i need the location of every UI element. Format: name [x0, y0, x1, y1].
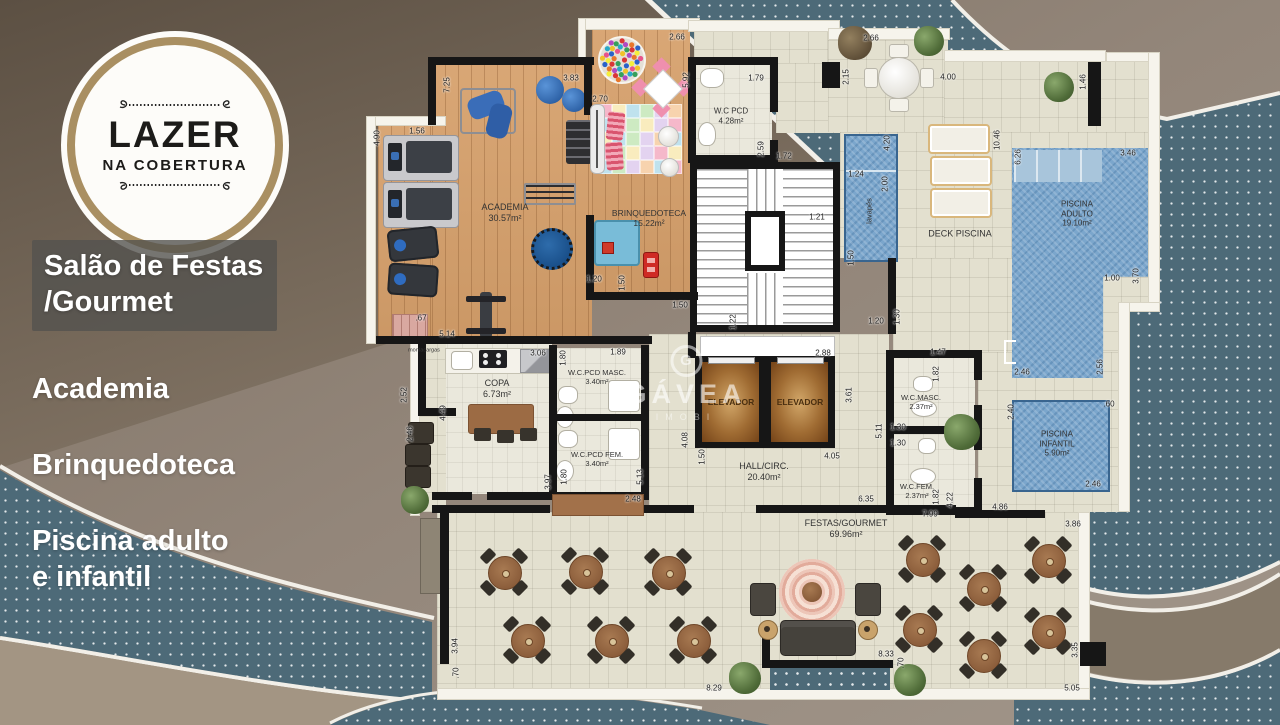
ball-pit-ball [635, 66, 640, 71]
ball-pit-ball [615, 49, 620, 54]
pool-lounger [930, 188, 992, 218]
ball-pit-ball [609, 51, 614, 56]
deck-table [878, 57, 920, 99]
lavapes [844, 134, 898, 262]
lounge-chair [408, 422, 434, 444]
stairwell [690, 162, 840, 332]
wall [974, 350, 982, 380]
wall [1088, 62, 1101, 126]
kitchen-sink [451, 351, 473, 370]
wc-sink [558, 386, 578, 404]
ball-pit-ball [630, 47, 635, 52]
grass-tuft [729, 662, 761, 694]
stair-core [745, 211, 785, 271]
copa-chair [520, 428, 537, 441]
sofa [780, 620, 856, 656]
ball-pit-ball [635, 45, 640, 50]
toy-slide [590, 104, 605, 174]
bench-press [466, 290, 506, 340]
toy-ball [660, 158, 679, 177]
play-mat-tile [626, 104, 640, 118]
ball-pit-ball [629, 42, 634, 47]
wall [586, 215, 594, 297]
parapet [1148, 52, 1160, 312]
piscina-infantil [1012, 400, 1110, 492]
ball-pit-ball [618, 44, 623, 49]
wall [888, 258, 896, 334]
stove [479, 350, 507, 368]
striped-play-mat [606, 111, 626, 141]
multi-gym-machine [456, 78, 522, 142]
copa-chair [474, 428, 491, 441]
amenities-list: Salão de Festas /GourmetAcademiaBrinqued… [32, 240, 362, 596]
wall [822, 62, 840, 88]
wall [440, 512, 449, 664]
ball-pit-ball [616, 61, 621, 66]
wall [428, 57, 594, 65]
lounge-chair [405, 444, 431, 466]
ball-pit-ball [632, 55, 637, 60]
wall [688, 155, 778, 163]
ball-pit-ball [610, 46, 615, 51]
wall [418, 340, 426, 416]
stair-treads [783, 169, 833, 325]
deck-chair [864, 68, 878, 88]
sidebar-item: Salão de Festas /Gourmet [32, 240, 277, 331]
wc-toilet [556, 460, 574, 482]
parapet [366, 116, 376, 344]
wall [770, 57, 778, 112]
play-mat-tile [640, 132, 654, 146]
play-mat-tile [626, 160, 640, 174]
wc-sink [913, 376, 933, 392]
ball-pit-ball [624, 63, 629, 68]
lavapes-divider [846, 170, 896, 172]
ball-pit-ball [612, 56, 617, 61]
ball-pit-ball [607, 71, 612, 76]
gym-mat-circle [531, 228, 573, 270]
sidebar-item: Academia [32, 371, 169, 407]
ball-pit-ball [605, 46, 610, 51]
ball-pit-ball [617, 66, 622, 71]
elevator-door [777, 357, 824, 364]
play-mat-tile [640, 104, 654, 118]
wall [432, 492, 472, 500]
pool-lounger [930, 156, 992, 186]
wall [549, 345, 557, 498]
shrub [914, 26, 944, 56]
wc-shower [608, 428, 640, 460]
pool-steps [1014, 150, 1102, 182]
wall [642, 505, 694, 513]
ball-pit-ball [620, 51, 625, 56]
exercise-bike [387, 262, 439, 297]
ball-pit-ball [627, 71, 632, 76]
elevator-door [708, 357, 755, 364]
dumbbell-rack [566, 120, 592, 164]
wc-sink [918, 438, 936, 454]
sidebar-item: Brinquedoteca [32, 447, 235, 483]
wall [762, 660, 893, 668]
play-mat-tile [668, 104, 682, 118]
ball-pit-ball [638, 56, 643, 61]
exercise-ball [562, 88, 586, 112]
ball-pit-ball [632, 72, 637, 77]
ball-pit-ball [602, 62, 607, 67]
flourish-icon [115, 178, 235, 192]
badge-title: LAZER [108, 116, 241, 153]
wc-toilet [910, 468, 936, 485]
play-mat-tile [640, 160, 654, 174]
toy-ball [658, 126, 679, 147]
shrub [944, 414, 980, 450]
grass-tuft [894, 664, 926, 696]
ball-pit-ball [623, 69, 628, 74]
ball-pit-ball [614, 41, 619, 46]
treadmill [383, 182, 459, 228]
wall [756, 505, 956, 513]
barbell-rack [524, 183, 576, 205]
pool-lounger [928, 124, 990, 154]
wall [432, 505, 550, 513]
exercise-bike [386, 225, 439, 262]
wall [688, 57, 778, 65]
wc-toilet [911, 400, 937, 417]
treadmill [383, 135, 459, 181]
side-table [858, 620, 878, 640]
armchair [750, 583, 776, 616]
shrub-brown [838, 26, 872, 60]
parapet [578, 18, 700, 30]
wall [955, 510, 1045, 518]
exercise-ball [536, 76, 564, 104]
play-mat-tile [626, 118, 640, 132]
wc-sink [700, 68, 724, 88]
parapet [944, 50, 1106, 62]
copa-chair [497, 430, 514, 443]
wc-toilet [698, 122, 716, 146]
deck-chair [889, 98, 909, 112]
stair-treads [747, 273, 783, 325]
play-mat-tile [626, 132, 640, 146]
toy-car [643, 252, 659, 278]
parapet [1118, 302, 1130, 512]
ball-pit-ball [622, 57, 627, 62]
ball-pit [598, 36, 646, 84]
ball-pit-ball [609, 40, 614, 45]
stair-treads [747, 169, 783, 211]
leisure-rooftop-floorplan-page: LAZER NA COBERTURA Salão de Festas /Gour… [0, 0, 1280, 725]
fridge [520, 349, 552, 373]
shrub [401, 486, 429, 514]
wall [886, 350, 982, 358]
lounge-chair [405, 466, 431, 488]
badge-subtitle: NA COBERTURA [102, 157, 247, 174]
stair-treads [697, 169, 747, 325]
ball-pit-ball [624, 47, 629, 52]
buffet-sideboard [552, 494, 644, 516]
flourish-icon [115, 98, 235, 112]
wall [688, 332, 696, 358]
wall [688, 60, 696, 162]
side-table [758, 620, 778, 640]
ball-pit-ball [607, 66, 612, 71]
ball-pit-ball [612, 68, 617, 73]
elevator-shaft [771, 362, 828, 442]
ball-pit-ball [630, 66, 635, 71]
sidebar-item: Piscina adulto e infantil [32, 523, 229, 596]
pool-ladder-icon [1004, 340, 1016, 364]
shrub [1044, 72, 1074, 102]
wc-sink [558, 430, 578, 448]
wall [641, 345, 649, 498]
wall [428, 57, 436, 125]
ball-pit-ball [629, 61, 634, 66]
parapet [437, 688, 1090, 700]
wall [586, 292, 698, 300]
play-mat-tile [640, 146, 654, 160]
coffee-table [802, 582, 822, 602]
ball-pit-ball [609, 62, 614, 67]
parapet [578, 18, 586, 62]
play-mat-tile [640, 118, 654, 132]
lazer-badge: LAZER NA COBERTURA [75, 45, 275, 245]
ball-pit-ball [635, 50, 640, 55]
play-table [594, 220, 640, 266]
elevator-shaft [702, 362, 759, 442]
wall-pillar [1080, 642, 1106, 666]
ball-pit-ball [627, 53, 632, 58]
wall [553, 414, 645, 421]
striped-play-mat [605, 141, 624, 170]
ball-pit-ball [623, 75, 628, 80]
deck-chair [889, 44, 909, 58]
ball-pit-ball [620, 38, 625, 43]
deck-chair [920, 68, 934, 88]
ball-pit-ball [600, 56, 605, 61]
ball-pit-ball [616, 77, 621, 82]
armchair [855, 583, 881, 616]
parapet [1078, 512, 1090, 698]
play-mat-tile [626, 146, 640, 160]
parapet [688, 20, 840, 32]
wc-shower [608, 380, 640, 412]
planter-bed [770, 668, 890, 690]
